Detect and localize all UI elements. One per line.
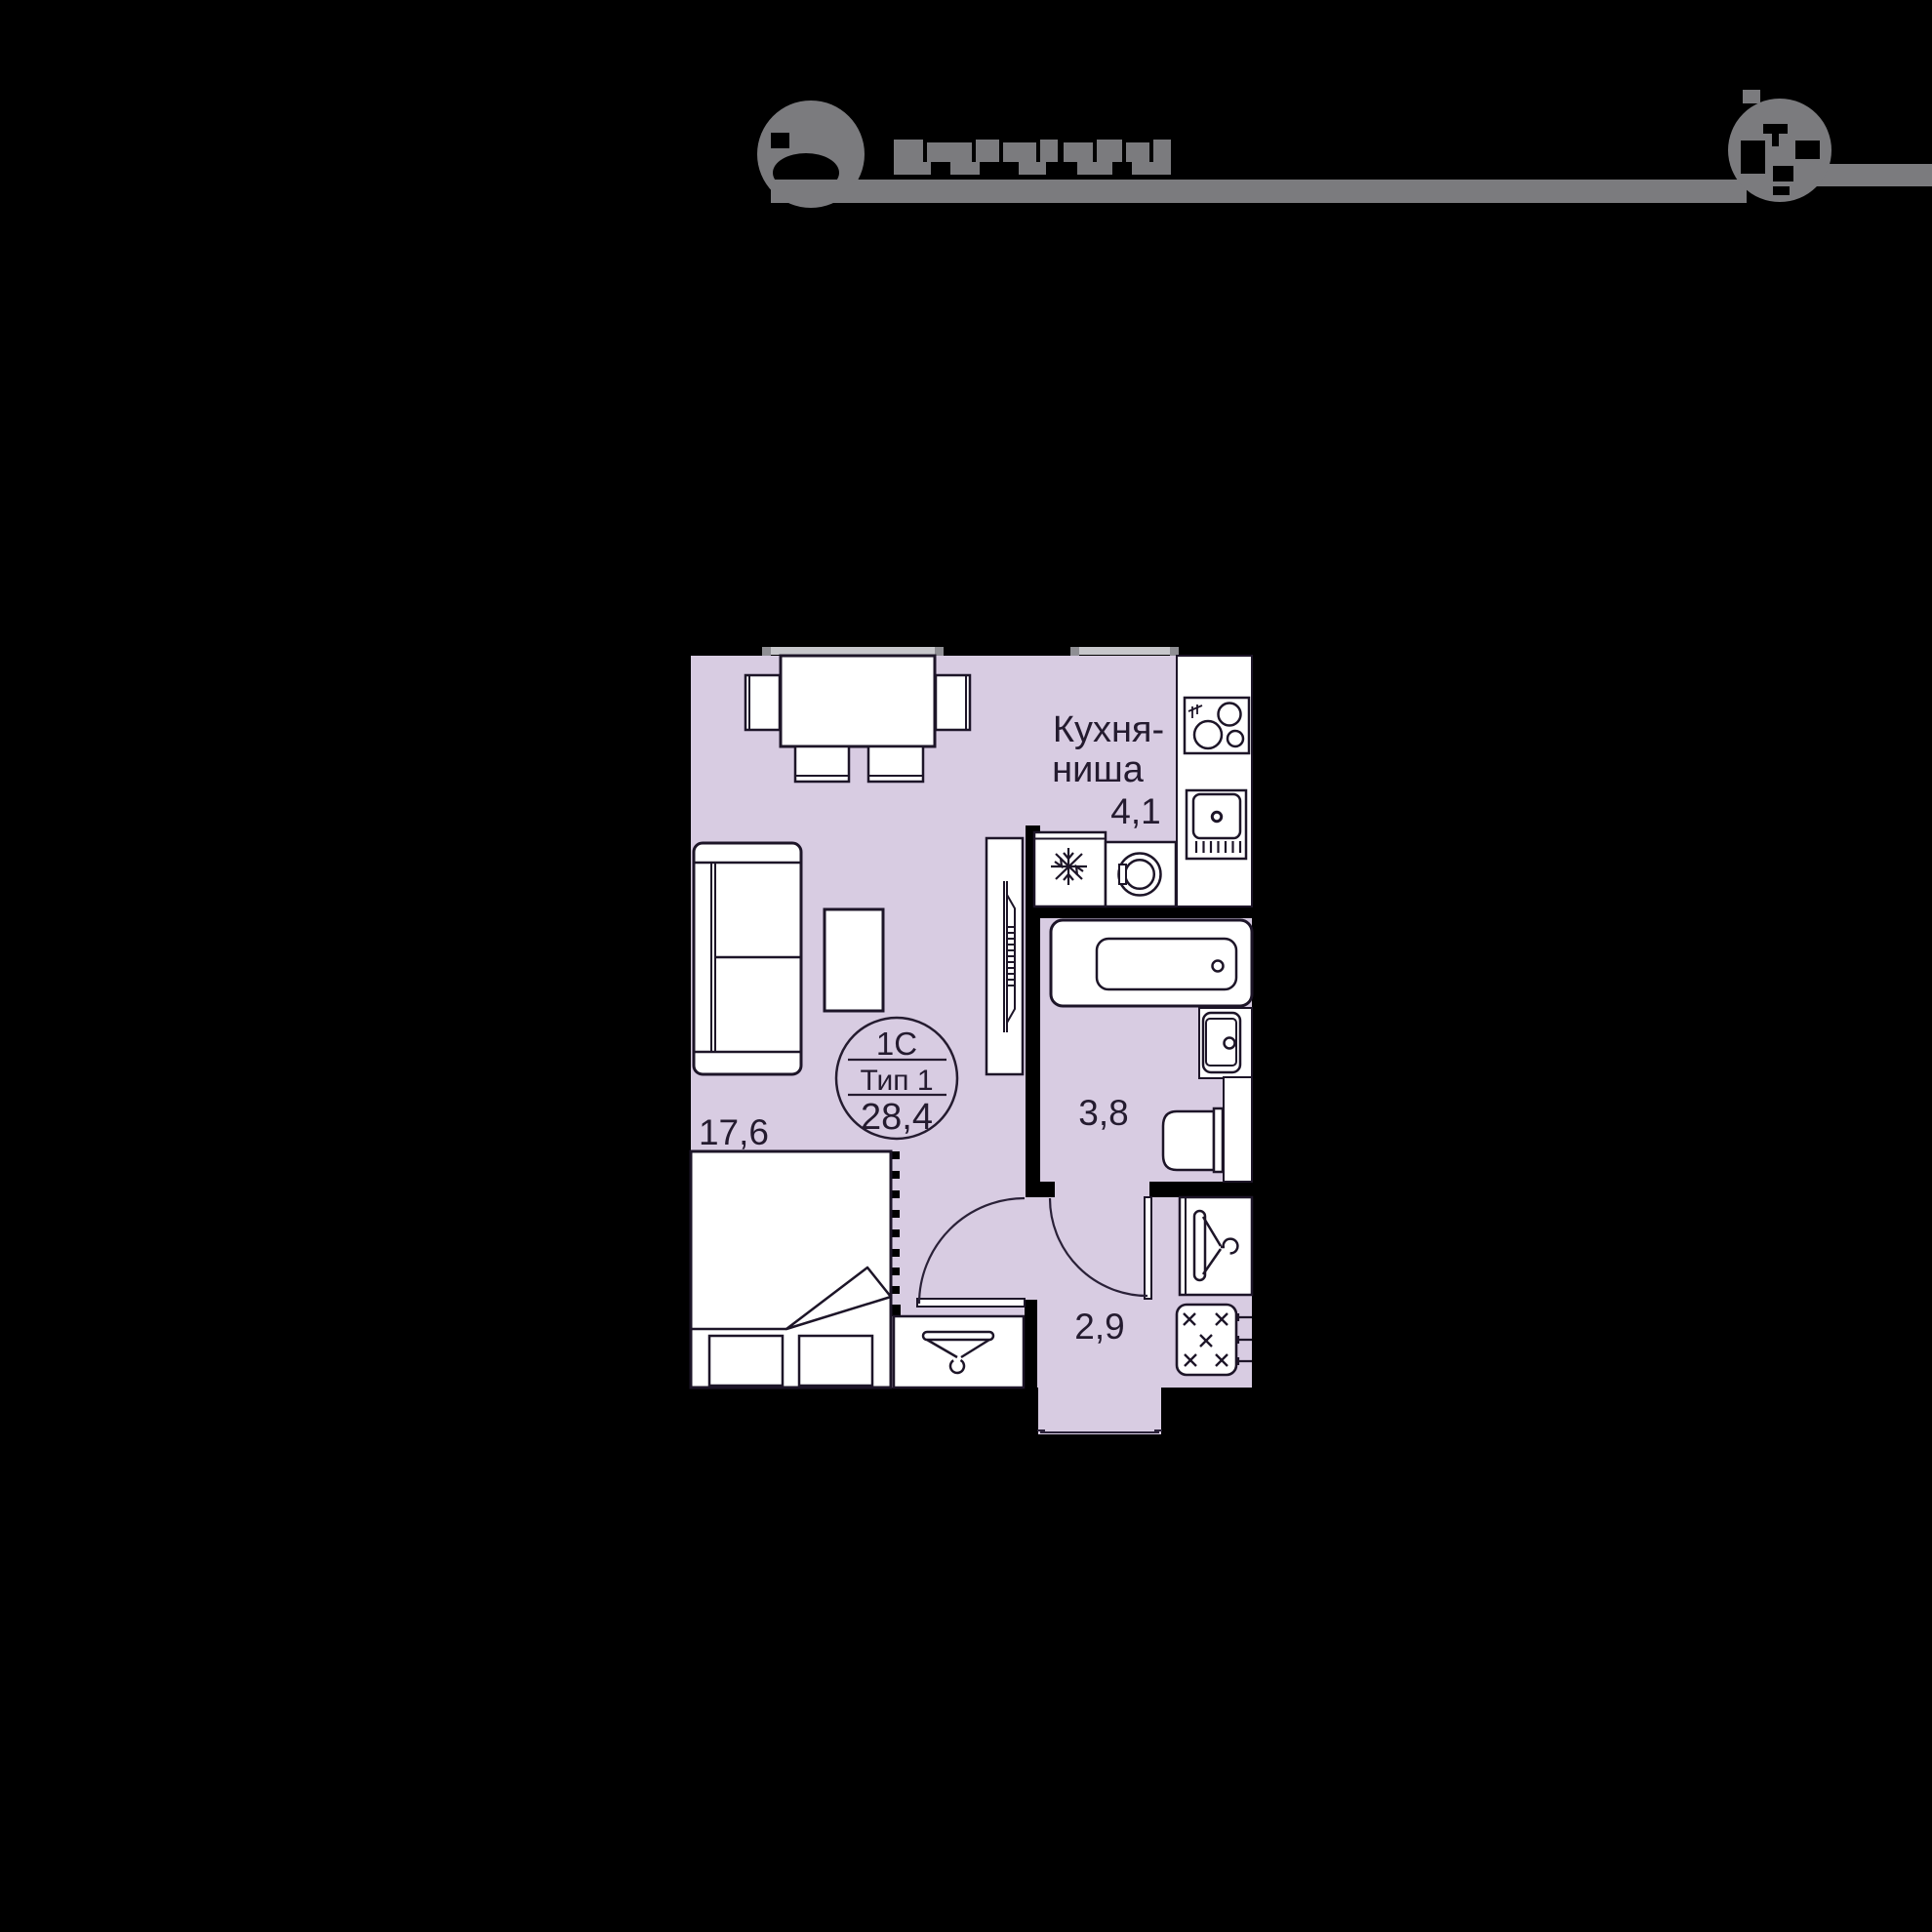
svg-text:Тип 1: Тип 1 <box>860 1065 933 1097</box>
svg-text:1С: 1С <box>876 1026 917 1062</box>
svg-text:28,4: 28,4 <box>861 1097 933 1138</box>
svg-text:ниша: ниша <box>1052 749 1145 790</box>
svg-text:Кухня-: Кухня- <box>1053 709 1164 750</box>
svg-text:2,9: 2,9 <box>1074 1307 1124 1347</box>
svg-text:17,6: 17,6 <box>699 1112 769 1152</box>
svg-text:3,8: 3,8 <box>1078 1093 1128 1133</box>
svg-text:4,1: 4,1 <box>1110 791 1160 831</box>
